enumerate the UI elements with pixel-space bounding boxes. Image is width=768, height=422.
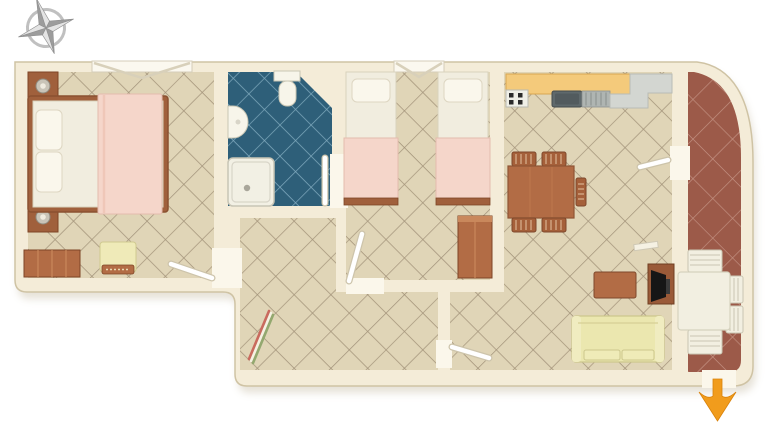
doorway-master	[212, 248, 242, 288]
blanket	[436, 138, 490, 200]
outdoor-table	[678, 272, 730, 330]
compass-rose-icon	[9, 0, 82, 63]
dining-table	[508, 166, 574, 218]
single-bed-right	[436, 72, 490, 205]
tv-stand	[648, 264, 674, 304]
shower-icon	[228, 158, 274, 206]
dining-chair	[542, 218, 566, 232]
floor-plan-page	[0, 0, 768, 422]
doorway-hall-living	[436, 340, 452, 368]
tv-icon	[651, 270, 666, 302]
dining-chair	[512, 152, 536, 166]
pillow	[36, 152, 62, 192]
outdoor-chair-top	[688, 250, 722, 272]
blanket	[98, 94, 162, 214]
coffee-table	[594, 272, 636, 298]
drainer-icon	[582, 91, 610, 107]
dining-chair	[512, 218, 536, 232]
stove-icon	[506, 90, 528, 107]
pillow	[36, 110, 62, 150]
floor-plan-canvas	[0, 0, 768, 422]
pillow	[352, 79, 390, 102]
dining-chair	[542, 152, 566, 166]
doorway-terrace	[670, 146, 690, 180]
sink-icon	[552, 91, 582, 107]
outdoor-chair-bottom	[688, 330, 722, 354]
wardrobe	[458, 216, 492, 278]
double-bed	[28, 94, 168, 214]
dining-chair	[576, 178, 586, 206]
armchair	[100, 242, 136, 274]
pillow	[444, 79, 482, 102]
sofa	[572, 316, 664, 362]
single-bed-left	[344, 72, 398, 205]
dresser	[24, 250, 80, 277]
blanket	[344, 138, 398, 200]
